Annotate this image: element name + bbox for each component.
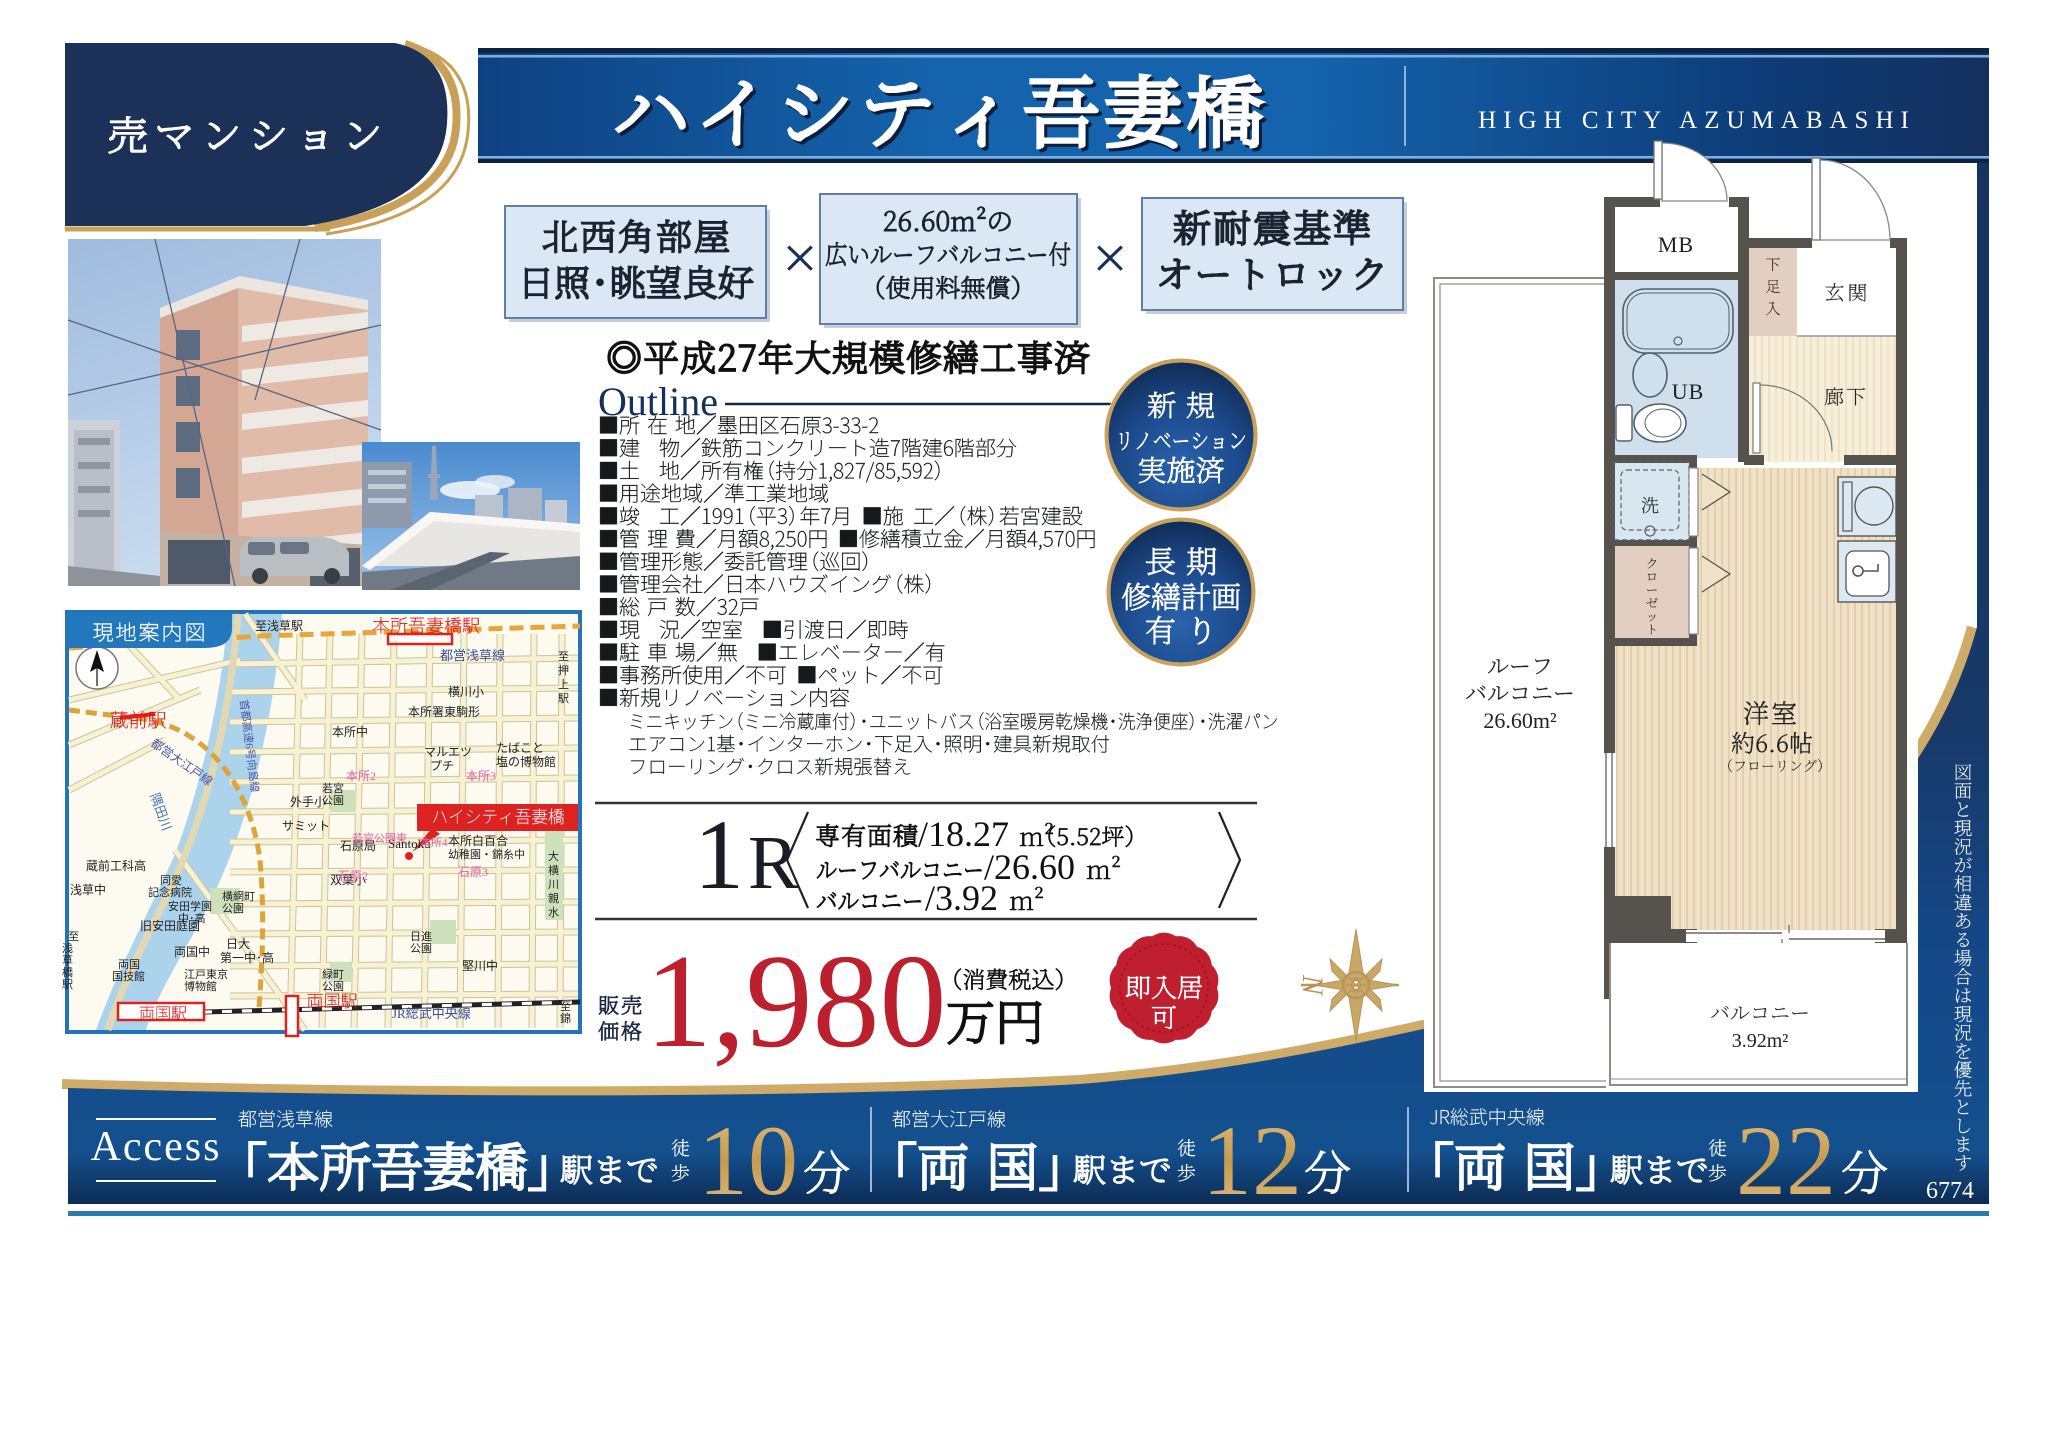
svg-text:橋: 橋	[62, 965, 73, 979]
svg-text:国技館: 国技館	[112, 969, 145, 983]
svg-text:1: 1	[694, 799, 744, 910]
svg-text:公園: 公園	[322, 794, 344, 807]
svg-text:日大: 日大	[226, 937, 250, 951]
svg-text:至: 至	[560, 1001, 571, 1013]
svg-text:浅: 浅	[62, 942, 73, 955]
svg-text:JR総武中央線: JR総武中央線	[392, 1006, 471, 1021]
svg-text:江戸東京: 江戸東京	[184, 967, 228, 981]
svg-text:第一中･高: 第一中･高	[220, 950, 274, 965]
svg-text:草: 草	[62, 954, 73, 967]
svg-text:若宮公園東: 若宮公園東	[352, 831, 407, 845]
svg-text:本所署東駒形: 本所署東駒形	[408, 705, 480, 719]
svg-text:都営浅草線: 都営浅草線	[440, 648, 505, 663]
svg-text:至: 至	[558, 651, 569, 663]
svg-text:N: N	[1296, 974, 1329, 997]
svg-text:本所白百合: 本所白百合	[448, 833, 508, 848]
svg-text:旧安田庭園: 旧安田庭園	[140, 918, 200, 933]
svg-text:両国中: 両国中	[174, 944, 210, 959]
svg-text:公園: 公園	[222, 902, 244, 915]
svg-text:たばこと: たばこと	[496, 741, 544, 755]
svg-text:横: 横	[548, 863, 559, 877]
svg-text:22: 22	[1736, 1105, 1836, 1216]
svg-text:マルエツ: マルエツ	[424, 745, 472, 759]
svg-text:本所3: 本所3	[466, 769, 496, 783]
svg-text:本所中: 本所中	[332, 724, 368, 739]
svg-text:Access: Access	[91, 1124, 222, 1170]
svg-text:外手小: 外手小	[290, 795, 326, 809]
svg-text:若宮: 若宮	[322, 781, 344, 795]
svg-text:至浅草駅: 至浅草駅	[255, 619, 303, 633]
svg-text:日進: 日進	[410, 930, 432, 943]
svg-text:横川小: 横川小	[448, 685, 484, 699]
svg-text:塩の博物館: 塩の博物館	[496, 754, 556, 769]
svg-text:石原3: 石原3	[458, 865, 488, 879]
svg-text:錦: 錦	[560, 1011, 571, 1025]
svg-text:1,980: 1,980	[645, 927, 947, 1075]
svg-text:安田学園: 安田学園	[168, 899, 212, 913]
svg-text:公園: 公園	[410, 942, 432, 955]
svg-text:本所2: 本所2	[346, 769, 376, 783]
svg-text:Outline: Outline	[598, 379, 718, 424]
svg-text:同愛: 同愛	[160, 874, 182, 887]
svg-text:本所4: 本所4	[420, 835, 448, 849]
svg-text:公園: 公園	[322, 980, 344, 993]
svg-text:サミット: サミット	[282, 819, 330, 833]
svg-text:至: 至	[68, 931, 79, 943]
svg-text:26.60m²: 26.60m²	[1483, 708, 1557, 733]
svg-text:駅: 駅	[62, 978, 73, 991]
svg-text:幼稚園・錦糸中: 幼稚園・錦糸中	[448, 847, 525, 861]
svg-text:記念病院: 記念病院	[148, 885, 192, 899]
svg-text:大: 大	[548, 849, 559, 863]
svg-text:石原2: 石原2	[338, 869, 368, 883]
svg-text:横網町: 横網町	[222, 889, 255, 903]
svg-text:12: 12	[1202, 1105, 1302, 1216]
svg-text:UB: UB	[1672, 379, 1705, 404]
svg-text:3.92m²: 3.92m²	[1732, 1030, 1789, 1052]
svg-text:10: 10	[698, 1105, 798, 1216]
svg-text:水: 水	[548, 906, 559, 919]
svg-text:/3.92: /3.92	[925, 878, 998, 918]
svg-text:浅草中: 浅草中	[70, 882, 106, 897]
svg-text:押: 押	[558, 663, 569, 677]
svg-text:駅: 駅	[558, 692, 569, 705]
svg-text:MB: MB	[1658, 232, 1694, 257]
svg-text:R: R	[748, 821, 799, 905]
svg-text:両国: 両国	[118, 958, 140, 971]
svg-text:HIGH CITY AZUMABASHI: HIGH CITY AZUMABASHI	[1478, 107, 1916, 134]
svg-text:上: 上	[558, 678, 569, 691]
svg-text:川: 川	[548, 879, 559, 891]
svg-text:6774: 6774	[1926, 1178, 1974, 1204]
svg-text:プチ: プチ	[430, 759, 454, 773]
svg-text:博物館: 博物館	[184, 979, 217, 993]
svg-text:緑町: 緑町	[322, 967, 344, 981]
svg-text:堅川中: 堅川中	[462, 958, 498, 973]
svg-text:蔵前工科高: 蔵前工科高	[86, 858, 146, 873]
svg-text:親: 親	[548, 892, 559, 905]
